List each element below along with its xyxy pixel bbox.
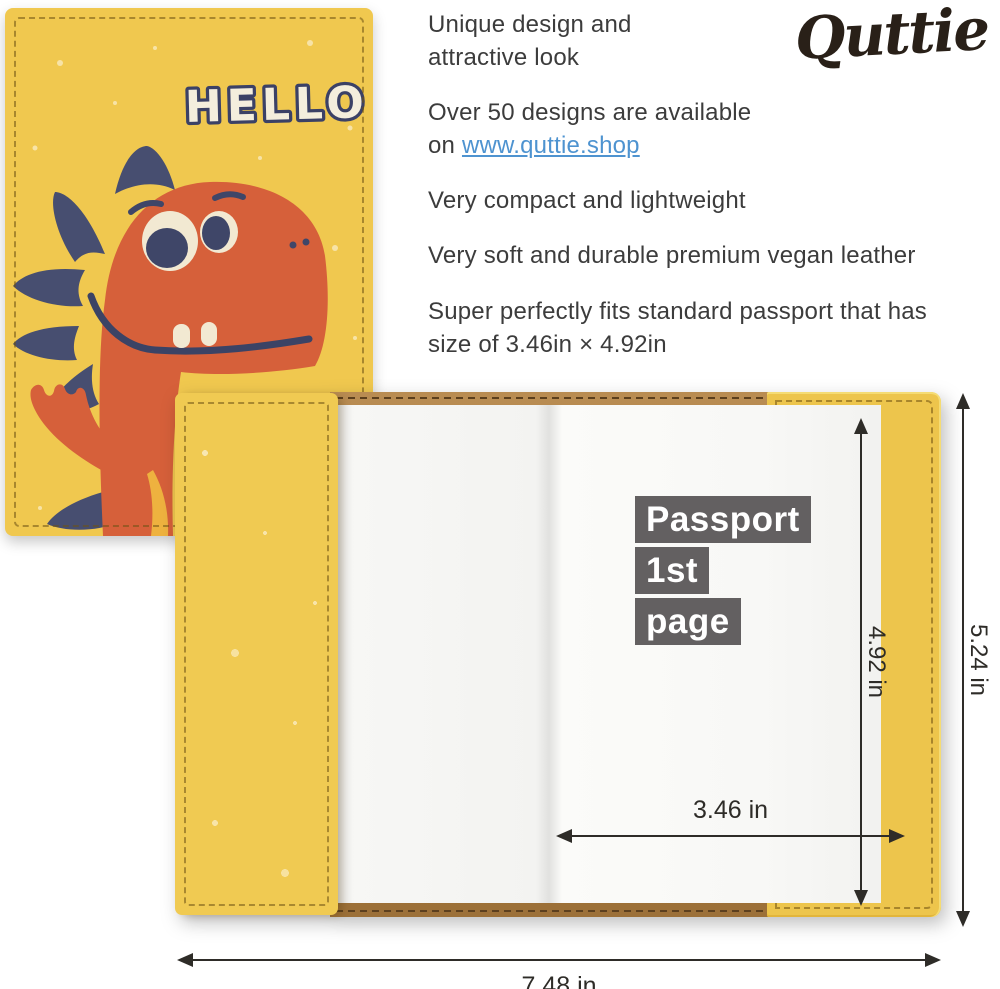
left-flap (175, 393, 338, 915)
arrow-down-icon (956, 911, 970, 927)
feature-compact: Very compact and lightweight (428, 184, 988, 217)
dimension-page-width: 3.46 in (556, 827, 905, 845)
dimension-page-width-label: 3.46 in (693, 796, 768, 825)
brand-logo: Quttie (781, 0, 1000, 74)
cork-stitch-top (336, 397, 784, 399)
feature-vegan-leather: Very soft and durable premium vegan leat… (428, 239, 988, 272)
page-label-line2: 1st (635, 547, 709, 594)
dimension-cover-height: 5.24 in (954, 393, 972, 927)
arrow-down-icon (854, 890, 868, 906)
dimension-open-width-label: 7.48 in (521, 972, 596, 989)
dimension-line (559, 835, 902, 837)
passport-page-label: Passport 1st page (635, 496, 811, 645)
dimension-page-height-label: 4.92 in (862, 626, 890, 698)
page-label-line3: page (635, 598, 741, 645)
feature-fits-passport: Super perfectly fits standard passport t… (428, 295, 988, 361)
quttie-shop-link[interactable]: www.quttie.shop (462, 132, 640, 159)
page-label-line1: Passport (635, 496, 811, 543)
arrow-right-icon (889, 829, 905, 843)
dimension-cover-height-label: 5.24 in (964, 624, 992, 696)
feature-designs-available: Over 50 designs are available on www.qut… (428, 96, 988, 162)
dimension-open-width: 7.48 in (177, 951, 941, 969)
product-infographic: HELLO Quttie Unique design and attractiv… (0, 0, 1000, 989)
dimension-line (180, 959, 938, 961)
cork-stitch-bottom (336, 910, 784, 912)
hello-text: HELLO (184, 77, 369, 133)
arrow-right-icon (925, 953, 941, 967)
